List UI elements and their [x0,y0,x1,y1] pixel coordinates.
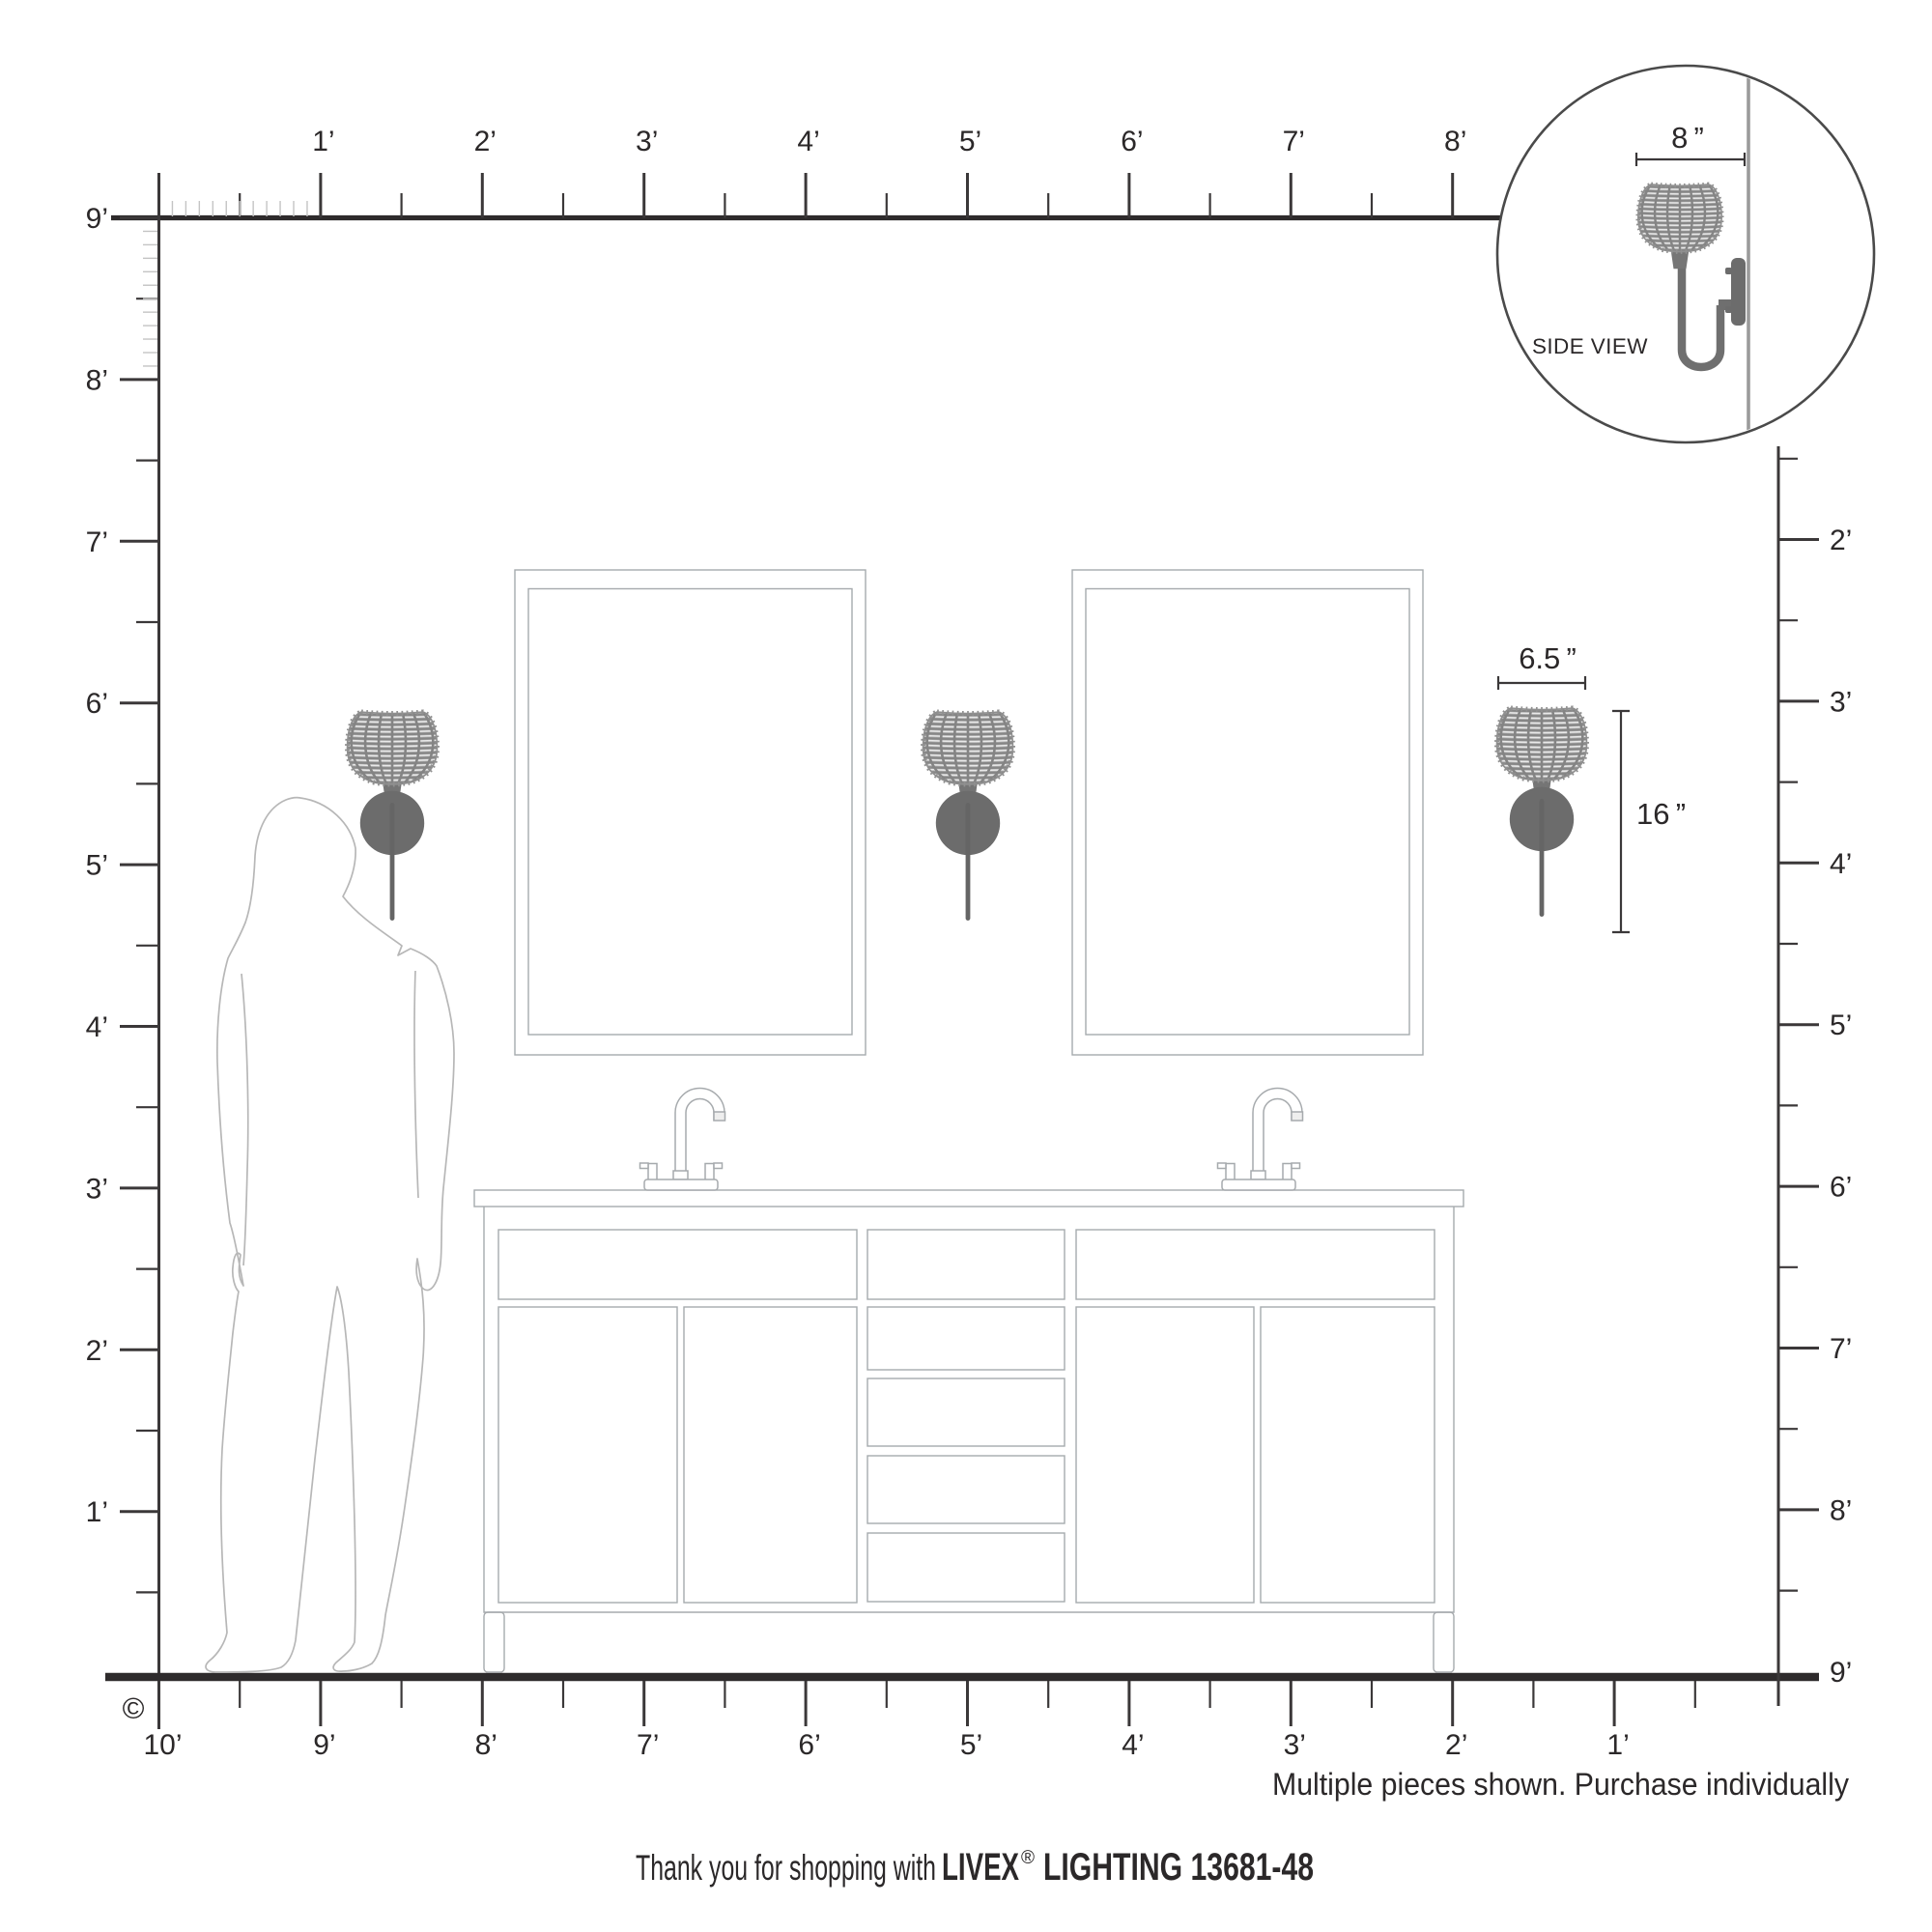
svg-text:3’: 3’ [1830,686,1852,718]
svg-text:1’: 1’ [86,1496,108,1528]
svg-text:6’: 6’ [798,1729,820,1761]
svg-text:3’: 3’ [1284,1729,1306,1761]
svg-text:7’: 7’ [1283,126,1305,157]
svg-text:7’: 7’ [637,1729,659,1761]
svg-text:5’: 5’ [1830,1009,1852,1041]
svg-text:6’: 6’ [1830,1172,1852,1204]
svg-text:9’: 9’ [313,1729,335,1761]
svg-text:©: © [123,1691,145,1725]
svg-text:7’: 7’ [1830,1333,1852,1365]
svg-text:5’: 5’ [959,126,981,157]
svg-text:1’: 1’ [312,126,334,157]
svg-text:6’: 6’ [1121,126,1143,157]
svg-text:SIDE VIEW: SIDE VIEW [1532,334,1648,358]
svg-text:10’: 10’ [143,1729,182,1761]
svg-text:6’: 6’ [86,688,108,720]
svg-text:8’: 8’ [86,364,108,396]
svg-text:8’: 8’ [475,1729,497,1761]
svg-text:8’: 8’ [1830,1494,1852,1526]
svg-text:4’: 4’ [797,126,819,157]
svg-text:2’: 2’ [1445,1729,1467,1761]
svg-text:9’: 9’ [1830,1657,1852,1689]
svg-text:5’: 5’ [960,1729,982,1761]
svg-text:6.5 ”: 6.5 ” [1519,641,1577,675]
svg-text:2’: 2’ [474,126,497,157]
svg-text:4’: 4’ [1830,848,1852,880]
svg-text:16 ”: 16 ” [1636,797,1686,831]
svg-text:4’: 4’ [86,1011,108,1043]
svg-text:7’: 7’ [86,526,108,558]
svg-text:5’: 5’ [86,850,108,882]
svg-text:Thank you for shopping with: Thank you for shopping with [636,1848,936,1888]
svg-text:LIVEX: LIVEX [942,1846,1019,1889]
svg-text:LIGHTING 13681-48: LIGHTING 13681-48 [1043,1846,1314,1889]
svg-text:1’: 1’ [1606,1729,1629,1761]
svg-text:Multiple pieces shown. Purchas: Multiple pieces shown. Purchase individu… [1272,1767,1849,1802]
svg-text:3’: 3’ [636,126,658,157]
svg-text:8’: 8’ [1444,126,1466,157]
svg-text:4’: 4’ [1122,1729,1144,1761]
svg-text:®: ® [1021,1848,1035,1868]
svg-text:9’: 9’ [86,203,108,235]
svg-text:2’: 2’ [1830,525,1852,556]
svg-text:8 ”: 8 ” [1671,121,1704,155]
svg-text:3’: 3’ [86,1173,108,1205]
svg-text:2’: 2’ [86,1335,108,1367]
